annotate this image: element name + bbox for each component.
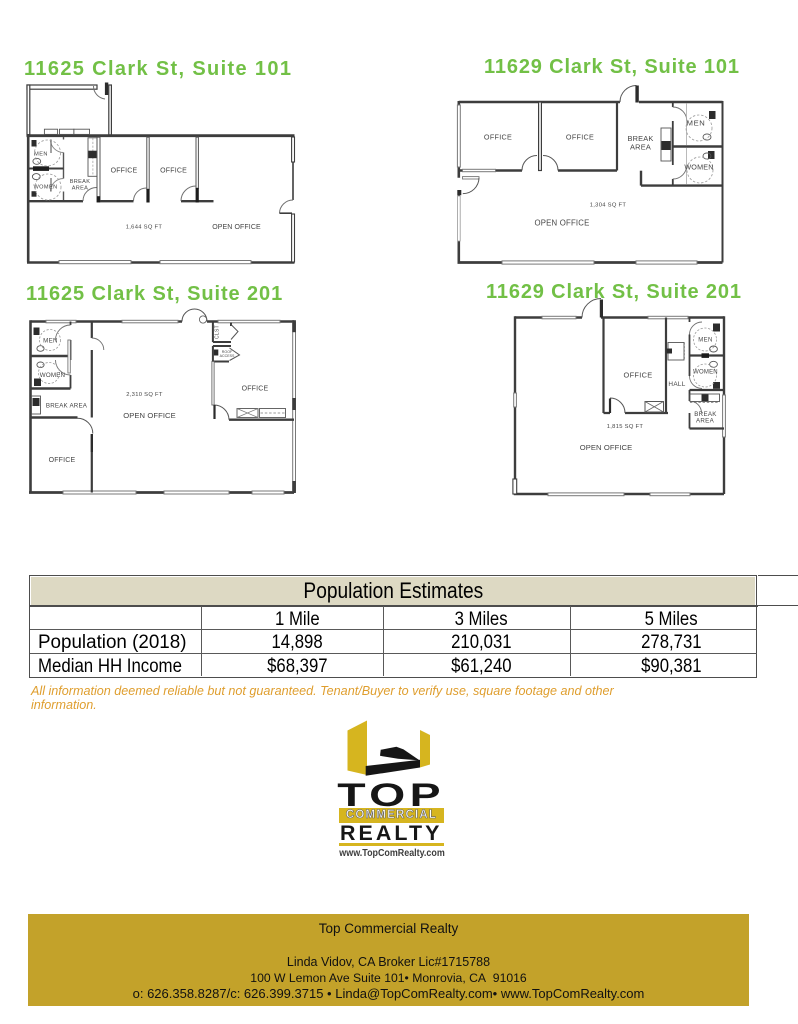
svg-text:1,304 SQ FT: 1,304 SQ FT (590, 203, 627, 209)
svg-text:OFFICE: OFFICE (566, 133, 594, 142)
svg-text:OFFICE: OFFICE (624, 371, 653, 380)
svg-text:OFFICE: OFFICE (242, 386, 269, 393)
svg-text:MEN: MEN (43, 338, 58, 345)
svg-text:MEN: MEN (687, 119, 706, 128)
svg-text:CLST: CLST (214, 325, 220, 339)
svg-text:AREA: AREA (72, 185, 88, 191)
svg-text:ACCESS: ACCESS (220, 354, 235, 358)
svg-text:2,310 SQ FT: 2,310 SQ FT (126, 392, 163, 398)
svg-text:1,815 SQ FT: 1,815 SQ FT (607, 424, 644, 430)
svg-text:AREA: AREA (630, 143, 651, 152)
svg-text:MEN: MEN (34, 152, 48, 158)
svg-text:HALL: HALL (668, 381, 685, 388)
svg-text:OFFICE: OFFICE (160, 167, 187, 174)
svg-text:OPEN OFFICE: OPEN OFFICE (534, 219, 589, 228)
svg-text:OFFICE: OFFICE (484, 133, 512, 142)
svg-text:AREA: AREA (696, 418, 715, 425)
svg-text:OFFICE: OFFICE (49, 457, 76, 464)
svg-text:OFFICE: OFFICE (111, 167, 138, 174)
svg-text:1,644 SQ FT: 1,644 SQ FT (126, 225, 163, 231)
svg-text:OPEN OFFICE: OPEN OFFICE (212, 224, 261, 231)
svg-text:WOMEN: WOMEN (684, 163, 713, 172)
svg-text:OPEN OFFICE: OPEN OFFICE (580, 443, 633, 452)
svg-text:WOMEN: WOMEN (693, 370, 718, 376)
svg-text:OPEN OFFICE: OPEN OFFICE (123, 411, 176, 420)
svg-text:WOMEN: WOMEN (40, 372, 65, 379)
svg-text:BREAK: BREAK (70, 179, 90, 185)
svg-text:BREAK AREA: BREAK AREA (46, 403, 88, 410)
svg-text:WOMEN: WOMEN (33, 185, 57, 191)
svg-text:MEN: MEN (698, 338, 713, 344)
